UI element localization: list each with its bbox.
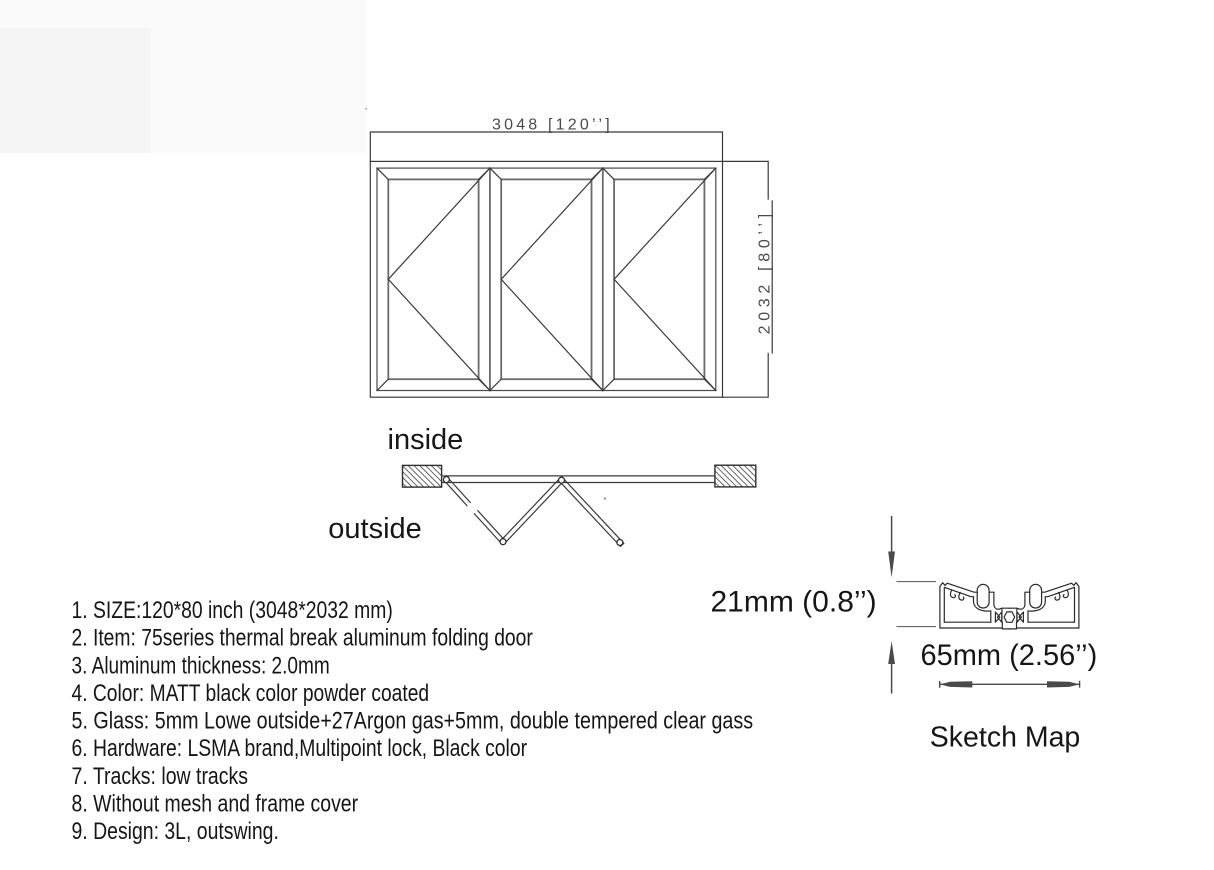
svg-text:2. Item: 75series thermal brea: 2. Item: 75series thermal break aluminum… — [72, 624, 533, 652]
svg-text:1. SIZE:120*80 inch (3048*2032: 1. SIZE:120*80 inch (3048*2032 mm) — [72, 596, 393, 624]
svg-text:inside: inside — [388, 424, 464, 456]
svg-text:4. Color: MATT black color pow: 4. Color: MATT black color powder coated — [72, 679, 430, 707]
svg-text:65mm (2.56’’): 65mm (2.56’’) — [921, 639, 1098, 673]
svg-text:5. Glass: 5mm Lowe outside+27A: 5. Glass: 5mm Lowe outside+27Argon gas+5… — [72, 707, 754, 734]
svg-text:21mm (0.8’’): 21mm (0.8’’) — [711, 586, 877, 619]
svg-text:2032 [80’’]: 2032 [80’’] — [757, 209, 774, 334]
svg-text:8. Without mesh and frame cove: 8. Without mesh and frame cover — [72, 790, 359, 817]
svg-text:7. Tracks: low tracks: 7. Tracks: low tracks — [72, 762, 249, 789]
svg-text:outside: outside — [328, 513, 422, 545]
svg-text:3. Aluminum thickness: 2.0mm: 3. Aluminum thickness: 2.0mm — [72, 651, 330, 679]
svg-text:3048 [120’’]: 3048 [120’’] — [492, 117, 613, 134]
svg-text:9. Design: 3L, outswing.: 9. Design: 3L, outswing. — [72, 817, 279, 844]
svg-text:Sketch Map: Sketch Map — [930, 721, 1081, 753]
svg-text:6. Hardware: LSMA brand,Multip: 6. Hardware: LSMA brand,Multipoint lock,… — [72, 734, 528, 762]
